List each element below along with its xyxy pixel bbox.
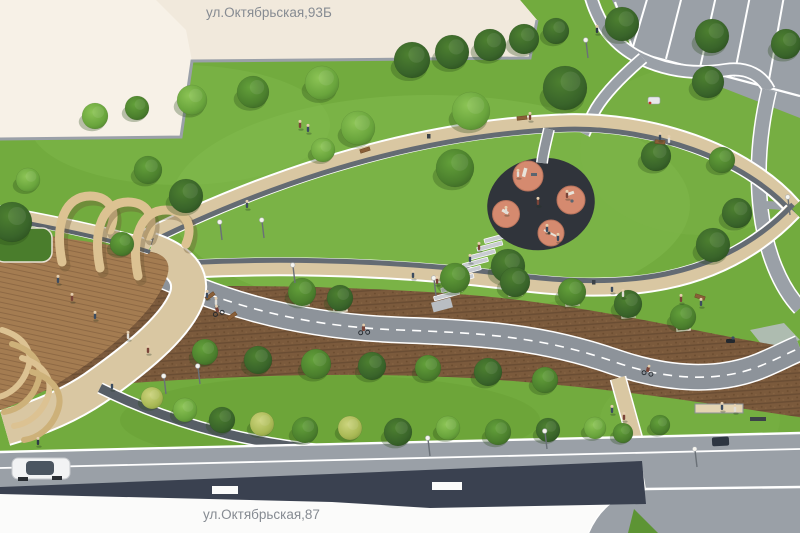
tree-highlight bbox=[512, 271, 526, 285]
tree-highlight bbox=[487, 33, 501, 47]
person-body bbox=[517, 172, 519, 178]
person-shadow bbox=[536, 206, 541, 208]
tree-highlight bbox=[452, 267, 466, 281]
tree-highlight bbox=[710, 232, 725, 247]
person-head bbox=[557, 233, 560, 236]
tree-highlight bbox=[408, 47, 424, 63]
tree-highlight bbox=[561, 72, 581, 92]
person-body bbox=[206, 293, 208, 299]
person-body bbox=[412, 273, 414, 279]
car-dark bbox=[712, 437, 729, 447]
person-head bbox=[94, 311, 97, 314]
person-body bbox=[469, 257, 471, 263]
tree-highlight bbox=[658, 418, 667, 427]
person-shadow bbox=[667, 144, 672, 146]
park-masterplan-render: ул.Октябрьская,87 ул.Октябрьская,93Б bbox=[0, 0, 800, 533]
person-shadow bbox=[545, 233, 550, 235]
person-head bbox=[622, 289, 625, 292]
person-shadow bbox=[245, 209, 250, 211]
person-head bbox=[71, 293, 74, 296]
lamp-head bbox=[785, 195, 790, 200]
shelter-bench bbox=[750, 417, 766, 421]
person-head bbox=[469, 254, 472, 257]
tree-highlight bbox=[189, 89, 203, 103]
person-shadow bbox=[411, 279, 416, 281]
person-body bbox=[478, 245, 480, 251]
person-shadow bbox=[468, 263, 473, 265]
person-head bbox=[307, 124, 310, 127]
person-shadow bbox=[36, 446, 41, 448]
person-body bbox=[721, 405, 723, 411]
tree-highlight bbox=[319, 70, 334, 85]
tree-highlight bbox=[8, 207, 26, 225]
tree-highlight bbox=[92, 106, 104, 118]
tree-highlight bbox=[135, 99, 146, 110]
tree-highlight bbox=[260, 415, 271, 426]
tree-highlight bbox=[734, 202, 748, 216]
tree-highlight bbox=[348, 419, 359, 430]
person-shadow bbox=[126, 340, 131, 342]
tree-highlight bbox=[449, 39, 464, 54]
tree-highlight bbox=[446, 419, 457, 430]
person-body bbox=[611, 287, 613, 293]
person-head bbox=[206, 290, 209, 293]
person-body bbox=[57, 278, 59, 284]
person-shadow bbox=[528, 121, 533, 123]
person-body bbox=[537, 200, 539, 206]
person-shadow bbox=[733, 413, 738, 415]
person-body bbox=[37, 440, 39, 446]
person-body bbox=[566, 193, 568, 199]
bench bbox=[517, 116, 527, 121]
person-head bbox=[566, 190, 569, 193]
tree-highlight bbox=[145, 160, 158, 173]
lamp-head bbox=[161, 374, 166, 379]
person-shadow bbox=[679, 303, 684, 305]
person-shadow bbox=[720, 411, 725, 413]
tree-highlight bbox=[709, 23, 724, 38]
play-structure bbox=[531, 173, 537, 176]
lamp-head bbox=[290, 263, 295, 268]
person-head bbox=[436, 276, 439, 279]
tree-highlight bbox=[299, 282, 312, 295]
tree-highlight bbox=[150, 390, 160, 400]
tree-highlight bbox=[783, 33, 797, 47]
tree-highlight bbox=[355, 115, 370, 130]
person-shadow bbox=[504, 215, 509, 217]
person-shadow bbox=[610, 293, 615, 295]
tree-highlight bbox=[302, 420, 314, 432]
person-head bbox=[299, 120, 302, 123]
person-body bbox=[127, 334, 129, 340]
motorcycle-rider bbox=[731, 336, 734, 339]
person-body bbox=[622, 292, 624, 298]
tree-highlight bbox=[250, 80, 264, 94]
person-head bbox=[680, 294, 683, 297]
car-taillight bbox=[649, 102, 652, 105]
person-body bbox=[111, 384, 113, 390]
person-body bbox=[668, 138, 670, 144]
render-canvas: ул.Октябрьская,87 ул.Октябрьская,93Б bbox=[0, 0, 800, 533]
person-shadow bbox=[56, 284, 61, 286]
tree-highlight bbox=[593, 420, 603, 430]
tree-highlight bbox=[705, 70, 719, 84]
person-shadow bbox=[306, 133, 311, 135]
person-head bbox=[57, 275, 60, 278]
tree-highlight bbox=[546, 421, 557, 432]
person-shadow bbox=[110, 390, 115, 392]
person-head bbox=[505, 206, 508, 209]
person-body bbox=[436, 279, 438, 285]
tree-highlight bbox=[321, 141, 332, 152]
person-head bbox=[734, 404, 737, 407]
tree-highlight bbox=[719, 150, 731, 162]
tree-highlight bbox=[425, 358, 437, 370]
tree-highlight bbox=[337, 288, 349, 300]
lamp-head bbox=[431, 276, 436, 281]
person-shadow bbox=[70, 302, 75, 304]
person-head bbox=[37, 437, 40, 440]
person-shadow bbox=[556, 242, 561, 244]
tree-highlight bbox=[680, 307, 692, 319]
person-shadow bbox=[622, 421, 627, 423]
tree-highlight bbox=[521, 28, 535, 42]
trash-bin bbox=[427, 134, 431, 139]
person-shadow bbox=[621, 298, 626, 300]
person-body bbox=[623, 415, 625, 421]
person-head bbox=[546, 224, 549, 227]
person-head bbox=[611, 284, 614, 287]
tree-highlight bbox=[621, 426, 630, 435]
person-shadow bbox=[658, 141, 663, 143]
person-body bbox=[299, 123, 301, 129]
person-body bbox=[557, 236, 559, 242]
motorcycle-body bbox=[726, 339, 735, 343]
tree-highlight bbox=[467, 97, 484, 114]
person-shadow bbox=[298, 129, 303, 131]
person-head bbox=[127, 331, 130, 334]
person-shadow bbox=[610, 414, 615, 416]
car-wheel bbox=[52, 476, 62, 480]
person-shadow bbox=[516, 178, 521, 180]
tree-highlight bbox=[26, 171, 37, 182]
person-body bbox=[611, 408, 613, 414]
tree-highlight bbox=[619, 11, 634, 26]
tree-highlight bbox=[219, 410, 231, 422]
car-windows bbox=[26, 461, 54, 475]
person-shadow bbox=[699, 307, 704, 309]
person-head bbox=[596, 25, 599, 28]
trash-bin bbox=[592, 280, 596, 285]
person-body bbox=[307, 127, 309, 133]
person-body bbox=[546, 227, 548, 233]
person-shadow bbox=[435, 285, 440, 287]
person-head bbox=[517, 169, 520, 172]
person-shadow bbox=[595, 34, 600, 36]
building-93b-label: ул.Октябрьская,93Б bbox=[206, 5, 332, 20]
tree-highlight bbox=[653, 145, 667, 159]
tree-highlight bbox=[183, 183, 198, 198]
tree-highlight bbox=[202, 342, 214, 354]
tree-highlight bbox=[369, 356, 382, 369]
tree-highlight bbox=[183, 401, 194, 412]
person-head bbox=[668, 135, 671, 138]
tree-highlight bbox=[495, 422, 507, 434]
person-head bbox=[215, 297, 218, 300]
tree-highlight bbox=[569, 282, 582, 295]
tree-highlight bbox=[553, 21, 565, 33]
lamp-head bbox=[692, 447, 697, 452]
tree-highlight bbox=[542, 370, 554, 382]
tree-highlight bbox=[451, 154, 468, 171]
person-body bbox=[147, 348, 149, 354]
person-body bbox=[215, 300, 217, 306]
tree-highlight bbox=[120, 235, 131, 246]
person-head bbox=[659, 132, 662, 135]
person-head bbox=[700, 298, 703, 301]
person-body bbox=[94, 314, 96, 320]
tree-highlight bbox=[625, 294, 638, 307]
person-body bbox=[680, 297, 682, 303]
roof-cutout bbox=[432, 482, 462, 490]
person-body bbox=[596, 28, 598, 34]
tree-highlight bbox=[505, 253, 520, 268]
person-body bbox=[529, 115, 531, 121]
person-shadow bbox=[477, 251, 482, 253]
person-head bbox=[147, 345, 150, 348]
person-body bbox=[505, 209, 507, 215]
person-head bbox=[412, 270, 415, 273]
person-head bbox=[537, 197, 540, 200]
person-shadow bbox=[565, 199, 570, 201]
person-head bbox=[111, 381, 114, 384]
person-head bbox=[721, 402, 724, 405]
tree-highlight bbox=[395, 422, 408, 435]
person-head bbox=[623, 412, 626, 415]
roof-cutout bbox=[212, 486, 238, 494]
playground-connector-path bbox=[542, 129, 549, 163]
person-shadow bbox=[146, 354, 151, 356]
car-wheel bbox=[18, 477, 28, 481]
person-body bbox=[659, 135, 661, 141]
building-87-label: ул.Октябрьская,87 bbox=[203, 507, 320, 522]
play-structure bbox=[570, 199, 573, 202]
lamp-head bbox=[542, 429, 547, 434]
lamp-head bbox=[217, 220, 222, 225]
lamp-head bbox=[195, 364, 200, 369]
person-head bbox=[478, 242, 481, 245]
person-body bbox=[700, 301, 702, 307]
person-head bbox=[529, 112, 532, 115]
person-body bbox=[246, 203, 248, 209]
tree-highlight bbox=[313, 353, 327, 367]
tree-highlight bbox=[255, 350, 268, 363]
lamp-head bbox=[425, 436, 430, 441]
tree-highlight bbox=[485, 362, 498, 375]
person-head bbox=[246, 200, 249, 203]
person-body bbox=[71, 296, 73, 302]
cyclist-body bbox=[362, 326, 366, 331]
person-body bbox=[734, 407, 736, 413]
person-head bbox=[611, 405, 614, 408]
person-shadow bbox=[93, 320, 98, 322]
car-white bbox=[12, 458, 70, 481]
lamp-head bbox=[583, 38, 588, 43]
person-shadow bbox=[205, 299, 210, 301]
lamp-head bbox=[259, 218, 264, 223]
